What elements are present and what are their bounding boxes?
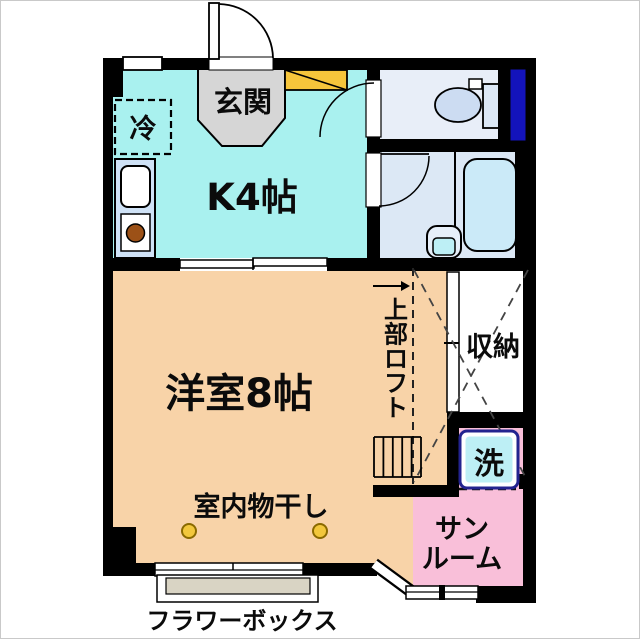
bottom-window: [155, 563, 303, 576]
entrance-door-leaf: [209, 3, 219, 59]
laundry-hook-icon: [313, 524, 327, 538]
indoor-drying-label: 室内物干し: [194, 491, 329, 523]
kitchen-window: [123, 57, 162, 70]
washing-machine-label: 洗: [474, 447, 504, 482]
toilet-door-opening: [366, 80, 381, 137]
bathtub-icon: [464, 159, 516, 251]
flower-box-label: フラワーボックス: [146, 607, 337, 635]
toilet-tank: [483, 84, 500, 128]
kitchen-sliding-door: [180, 258, 327, 271]
toilet-flush-box: [469, 79, 482, 89]
kitchen-label: K4帖: [206, 176, 297, 219]
bathroom-door-opening: [366, 153, 381, 207]
western-room-label: 洋室8帖: [165, 371, 313, 417]
refrigerator-label: 冷: [130, 114, 157, 145]
entrance-label: 玄関: [214, 85, 272, 119]
sunroom-label-line2: ルーム: [422, 544, 502, 575]
stove-burner-icon: [127, 224, 145, 242]
toilet-bowl-icon: [435, 88, 481, 122]
kitchen-sink: [121, 166, 150, 207]
floor-plan-svg: 玄関 冷 K4帖 洋室8帖 室内物干し フラワーボックス 収納 洗 サン ルーム…: [0, 0, 640, 639]
closet-label: 収納: [466, 331, 520, 363]
laundry-hook-icon: [182, 524, 196, 538]
flower-box: [157, 575, 318, 602]
washbasin-inner: [433, 238, 455, 255]
upper-loft-label: 上部ロフト: [384, 296, 408, 422]
sunroom-label-line1: サン: [435, 514, 489, 545]
toilet-window: [510, 69, 526, 141]
entrance-door-arc: [219, 4, 273, 58]
floor-plan-image: 玄関 冷 K4帖 洋室8帖 室内物干し フラワーボックス 収納 洗 サン ルーム…: [0, 0, 640, 639]
